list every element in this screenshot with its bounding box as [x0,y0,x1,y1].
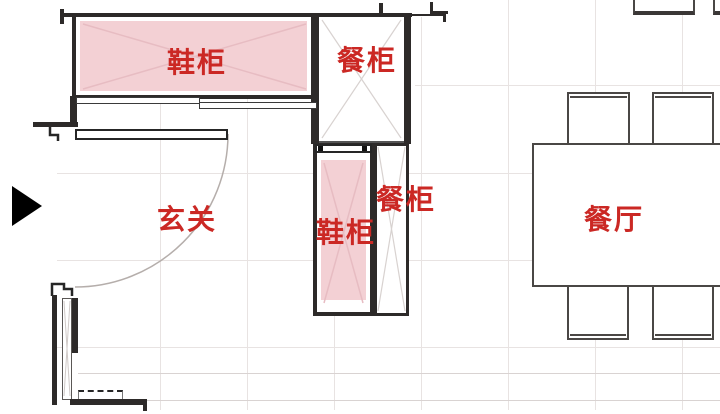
wall-tick [379,3,383,14]
wall-end-tick [443,13,446,22]
label-shoe-cabinet-side: 鞋柜 [316,219,376,247]
exterior-wall-left [52,295,57,405]
label-dining-room: 餐厅 [584,206,644,234]
bottom-wall-tick [143,399,147,411]
top-wall-thin [412,14,444,16]
right-cabinet-wall [404,13,411,144]
label-dining-cabinet-side: 餐柜 [376,186,436,214]
closet-frame-bar [72,298,78,353]
connector-dot [362,146,367,151]
wall-tick [60,9,64,24]
separation-wall [311,13,319,144]
floor-plan: 鞋柜 餐柜 鞋柜 餐柜 玄关 餐厅 [0,0,720,414]
corner-bracket [430,11,448,14]
exterior-wall-top-left [33,122,78,127]
label-dining-cabinet-top: 餐柜 [337,47,397,75]
bottom-wall-bar [70,399,147,405]
top-wall [63,13,412,17]
counter-strip [76,97,200,104]
label-entryway: 玄关 [157,206,217,234]
counter-strip [199,102,317,109]
wall-step-top [50,127,58,141]
label-shoe-cabinet-top: 鞋柜 [167,49,227,77]
connector-dot [318,146,323,151]
entry-door-leaf [75,129,228,140]
entrance-arrow-icon [12,186,42,226]
